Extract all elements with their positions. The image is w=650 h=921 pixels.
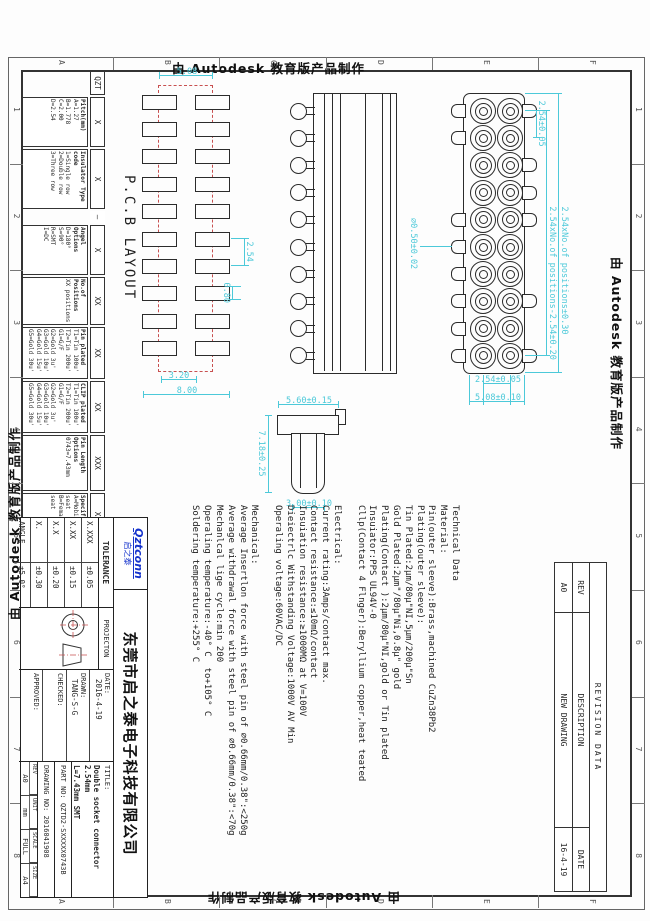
ordering-segment: XAngel OptionsD=180°S=90°R=SMTI=DC [22,225,105,275]
solder-pad [142,177,177,192]
tolerance-row: X.XX±0.15 [64,518,81,607]
zone-letter: B [163,899,172,904]
revision-data-cell: 16-4-19 [555,828,572,891]
body-profile-line [340,94,341,371]
tech-text-line [342,505,354,875]
signature-fields: DATE: 2016-4-19 DRAWN: TANG-S-G CHECKED:… [19,670,113,762]
drawing-no-row: DRAWING NO: 2016041908 [37,762,54,897]
smt-lead [522,104,537,118]
company-name: 东莞市启之泰电子科技有限公司 [114,590,147,897]
smt-lead [522,158,537,172]
zone-tick [632,377,645,378]
solder-pad [195,341,230,356]
pin-neck [306,325,315,333]
projection-label: PROJECTON [98,608,113,669]
socket-contact-hole [479,161,488,170]
zone-tick [632,164,645,165]
zone-tick [632,803,645,804]
solder-pad [195,95,230,110]
solder-pad [142,122,177,137]
pin-head [290,266,307,283]
socket-contact-hole [506,270,515,279]
edu-stamp-right: 由 Autodesk 教育版产品制作 [207,889,400,908]
dimension-tick [229,391,230,398]
tech-text-line: Material: [436,505,448,875]
revision-data-cell: A0 [555,563,572,613]
ordering-segment: XXPin platedT1=Tin 100u'T2=Tin 200u'G1=G… [22,327,105,379]
socket-contact-hole [506,107,515,116]
mini-cell-rev: REVA0 [21,762,37,796]
projection-symbol-icon [39,608,95,668]
smt-lead [522,186,537,200]
dimension-label: 5.08 [159,67,215,77]
ordering-segment: — [22,211,105,223]
solder-pad [142,314,177,329]
dimension-label: 8.00 [159,386,215,396]
zone-number: 7 [634,747,643,752]
solder-pad [195,149,230,164]
zone-letter: C [269,899,278,904]
zone-tick [538,895,539,908]
revision-table-header-row: REVDESCRIPTIONDATE [572,563,589,891]
socket-contact-hole [506,134,515,143]
solder-pad [142,149,177,164]
solder-pad [142,232,177,247]
solder-pad [142,95,177,110]
smt-lead [451,294,466,308]
zone-number: 8 [634,853,643,858]
dimension-label: 2.54xNo.of positions±0.30 [559,207,569,259]
socket-contact-hole [506,243,515,252]
mini-cell-scale: SCALEFULL [21,830,37,864]
zone-tick [10,483,23,484]
logo-text: Qztconn [132,518,145,589]
tech-text-line: Plating(Contact ):2μm/80μ"NI,gold or Tin… [377,505,389,875]
smt-lead [451,131,466,145]
smt-lead [451,104,466,118]
pin-neck [306,243,315,251]
part-no-row: PART NO: QZTD2-SXXXXX0743B [54,762,71,897]
zone-tick [219,57,220,70]
title-area: TITLE: Double socket connector 2.54mm L=… [19,762,113,897]
dimension-label: 0.80 [221,267,231,319]
ordering-segment: XPitch(mm)A=1.27B=1.778C=2.00D=2.54 [22,97,105,147]
contact-barrel [291,433,325,494]
pin-head [290,239,307,256]
pin-neck [306,189,315,197]
zone-tick [432,57,433,70]
tech-text-line: Electrical: [330,505,342,875]
socket-contact-hole [506,161,515,170]
revision-table-data-row: A0NEW DRAWING16-4-19 [555,563,572,891]
zone-tick [10,377,23,378]
zone-letter: F [588,899,597,904]
revision-data-cell: NEW DRAWING [555,613,572,828]
pin-head [290,103,307,120]
zone-number: 4 [12,427,21,432]
extension-line [525,372,555,373]
ordering-code-cell: X [90,149,105,209]
dimension-label: 2.54±0.05 [536,98,546,150]
tolerance-row: X.±0.30 [30,518,47,607]
zone-tick [632,697,645,698]
smt-lead [451,267,466,281]
tech-text-line: Tin Plated:2μm/80μ"NI,5μm/200μ"Sn [401,505,413,875]
pin-head [290,293,307,310]
pin-neck [306,297,315,305]
zone-letter: E [482,899,491,904]
drawing-title-line1: Double socket connector 2.54mm [83,765,101,894]
mini-cell-size: SIZEA4 [21,864,37,897]
dimension-line [232,286,233,299]
tech-text-line: Technical Data [448,505,460,875]
tech-text-line: Gold Plated:2μm"/80μ"Ni,0.8μ" gold [389,505,401,875]
socket-contact-hole [479,297,488,306]
zone-letter: A [57,899,66,904]
zone-number: 2 [12,214,21,219]
ordering-segment: QZT [22,71,105,95]
zone-number: 4 [634,427,643,432]
title-block: Qztconn 启之泰 东莞市启之泰电子科技有限公司 TOLERANCE X.X… [20,517,148,898]
dimension-line [268,415,269,492]
zone-tick [219,895,220,908]
dimension-tick [555,93,562,94]
zone-number: 1 [634,107,643,112]
field-approved: APPROVED: [19,670,43,761]
tech-text-line: Insuiation resistance:≥1000MΩ at V=100V [295,505,307,875]
dimension-label: 5.08±0.10 [470,393,526,403]
ordering-code-cell: X [90,97,105,147]
ordering-option-cell: Pin Length Options0743=7.43mm [22,435,88,491]
body-profile-line [365,94,366,371]
ordering-option-cell: Angel OptionsD=180°S=90°R=SMTI=DC [22,225,88,275]
socket-contact-hole [506,297,515,306]
tolerance-header: TOLERANCE [98,518,113,607]
tech-text-line: Operaling voltage:60VAC/DC [271,505,283,875]
zone-letter: D [376,60,385,65]
dimension-tick [278,401,279,408]
tech-text-line: Average withdrawal force with steel pin … [224,505,236,875]
extension-line [525,93,555,94]
barrel-line [316,433,317,488]
tech-text-line: Mechanlcal lige cycle:min 200 [212,505,224,875]
ordering-segment: XXCLIP platedT1=Tin 100u'T2=Tin 200u'G1=… [22,381,105,433]
zone-tick [10,270,23,271]
zone-number: 2 [634,214,643,219]
zone-tick [538,57,539,70]
dimension-label: 3.20 [152,371,208,381]
solder-pad [142,341,177,356]
zone-number: 5 [634,533,643,538]
dimension-tick [555,372,562,373]
body-profile-line [382,94,383,371]
company-logo: Qztconn 启之泰 [114,518,147,590]
part-no-value: QZTD2-SXXXXX0743B [59,803,67,875]
smt-lead [451,349,466,363]
technical-data-text: Technical DataMaterial:Pin(outer sleeve)… [189,505,460,875]
dimension-label: 7.18±0.25 [256,428,266,480]
revision-header-cell: REV [573,563,589,613]
rev-unit-scale-size-row: REVA0UNITmmSCALEFULLSIZEA4 [21,762,37,897]
tech-text-line: Contact resistance:≤10mΩ/contact [307,505,319,875]
zone-number: 3 [634,320,643,325]
pcb-layout-label: P.C.B LAYOUT [121,175,137,300]
pin-neck [306,134,315,142]
smt-lead [451,213,466,227]
dimension-tick [265,492,272,493]
tech-text-line: Mechanical: [248,505,260,875]
zone-tick [632,270,645,271]
socket-contact-hole [479,243,488,252]
body-profile-line [324,94,325,371]
zone-tick [632,590,645,591]
projection-cell: PROJECTON [19,608,113,670]
tolerance-table: TOLERANCE X.XXX±0.05X.XX±0.15X.X±0.20X.±… [19,518,113,608]
edu-stamp-top: 由 Autodesk 教育版产品制作 [608,257,627,450]
solder-pad [195,177,230,192]
ordering-option-cell: CLIP platedT1=Tin 100u'T2=Tin 200u'G1=G/… [22,381,88,433]
drawing-page: 由 Autodesk 教育版产品制作 由 Autodesk 教育版产品制作 由 … [0,0,650,921]
pin-neck [306,352,315,360]
zone-number: 3 [12,320,21,325]
drawn-value: TANG-S-G [71,673,80,761]
tolerance-row: ANGLE±5.0° [14,518,30,607]
solder-pad [195,122,230,137]
body-profile-line [332,94,333,371]
drawing-no-value: 2016041908 [42,816,50,858]
zone-number: 6 [634,640,643,645]
mini-cell-unit: UNITmm [21,796,37,830]
ordering-segment: XInsulator Type code1=Single row2=Double… [22,149,105,209]
smt-lead [522,349,537,363]
pin-head [290,157,307,174]
revision-table-title: REVISION DATA [589,563,606,891]
zone-letter: C [269,60,278,65]
field-drawn: DRAWN: TANG-S-G [66,670,90,761]
ordering-code-cell: XX [90,277,105,325]
smt-lead [451,240,466,254]
tech-text-line: Average Insertlon force with steel pin o… [236,505,248,875]
solder-pad [142,259,177,274]
dimension-label: ∅0.50±0.02 [408,218,418,269]
tech-text-line: Plating(outer sleeve): [413,505,425,875]
revision-table: REVISION DATA REVDESCRIPTIONDATE A0NEW D… [554,562,607,892]
zone-tick [432,895,433,908]
ordering-segment: XXNo.of PositionsXX positions [22,277,105,325]
tech-text-line: Dieiectrlc Withstanding Voltage:1000V AV… [283,505,295,875]
barrel-line [300,433,301,488]
tech-text-line: Current rating:3Amps/contact max. [318,505,330,875]
ordering-code-cell: — [90,211,105,223]
solder-pad [195,232,230,247]
connector-side-body [313,93,397,374]
zone-tick [326,57,327,70]
ordering-option-cell: Pin platedT1=Tin 100u'T2=Tin 200u'G1=G/F… [22,327,88,379]
ordering-code-table: QZTXPitch(mm)A=1.27B=1.778C=2.00D=2.54XI… [22,71,105,537]
ordering-code-cell: X [90,225,105,275]
field-checked: CHECKED: [43,670,67,761]
zone-letter: D [376,899,385,904]
pin-head [290,320,307,337]
dimension-label: 2.54xNo.of positions-2.54±0.20 [547,206,557,258]
tolerance-row: X.XXX±0.05 [81,518,98,607]
smt-lead [451,322,466,336]
drawing-title-line2: L=7.43mm SMT [72,765,81,894]
tech-text-line: Cllp(Contact 4 Flnger):Beryllium copper,… [354,505,366,875]
logo-subtext: 启之泰 [123,518,132,589]
dimension-tick [338,401,339,408]
ordering-option-cell: Insulator Type code1=Single row2=Double … [22,149,88,209]
pin-neck [306,161,315,169]
ordering-segment: XXXPin Length Options0743=7.43mm [22,435,105,491]
tech-text-line: Soldering temperature:+255° C [189,505,201,875]
zone-number: 1 [12,107,21,112]
solder-pad [195,204,230,219]
date-value: 2016-4-19 [94,673,103,761]
leader-line [420,246,452,247]
smt-lead [522,294,537,308]
dimension-tick [143,391,144,398]
pin-neck [306,216,315,224]
revision-header-cell: DATE [573,828,589,891]
ordering-option-cell: Pitch(mm)A=1.27B=1.778C=2.00D=2.54 [22,97,88,147]
dimension-label: 2.54 [244,226,254,278]
dimension-label: 2.54±0.05 [470,375,526,385]
ordering-code-cell: QZT [90,71,105,95]
socket-contact-hole [479,107,488,116]
ordering-option-cell: No.of PositionsXX positions [22,277,88,325]
zone-tick [10,164,23,165]
ordering-code-cell: XX [90,381,105,433]
pin-head [290,184,307,201]
zone-tick [632,483,645,484]
contact-flange [277,415,339,435]
zone-letter: E [482,60,491,65]
field-date: DATE: 2016-4-19 [90,670,114,761]
tech-text-line: Insuiator:PPS UL94V-0 [366,505,378,875]
ordering-code-cell: XX [90,327,105,379]
solder-pad [142,204,177,219]
title-label: TITLE: [103,765,111,790]
zone-tick [326,895,327,908]
pin-neck [306,270,315,278]
pin-head [290,130,307,147]
solder-pad [142,286,177,301]
revision-header-cell: DESCRIPTION [573,613,589,828]
ordering-code-cell: XXX [90,435,105,491]
zone-letter: B [163,60,172,65]
tolerance-row: X.X±0.20 [47,518,64,607]
tech-text-line: Operaling temperature:-40° C to+105° C [200,505,212,875]
zone-tick [113,57,114,70]
socket-contact-hole [479,134,488,143]
drawing-sheet: 由 Autodesk 教育版产品制作 由 Autodesk 教育版产品制作 由 … [8,57,645,910]
extension-line [525,355,545,356]
smt-lead [522,213,537,227]
socket-contact-hole [479,270,488,279]
zone-letter: A [57,60,66,65]
zone-letter: F [588,60,597,65]
dimension-label: 5.60±0.15 [281,396,337,406]
tech-text-line [259,505,271,875]
dimension-tick [265,415,272,416]
tech-text-line: Pin(outer sleeve):Brass,machined CuZn38P… [425,505,437,875]
body-profile-line [390,94,391,371]
pin-neck [306,107,315,115]
